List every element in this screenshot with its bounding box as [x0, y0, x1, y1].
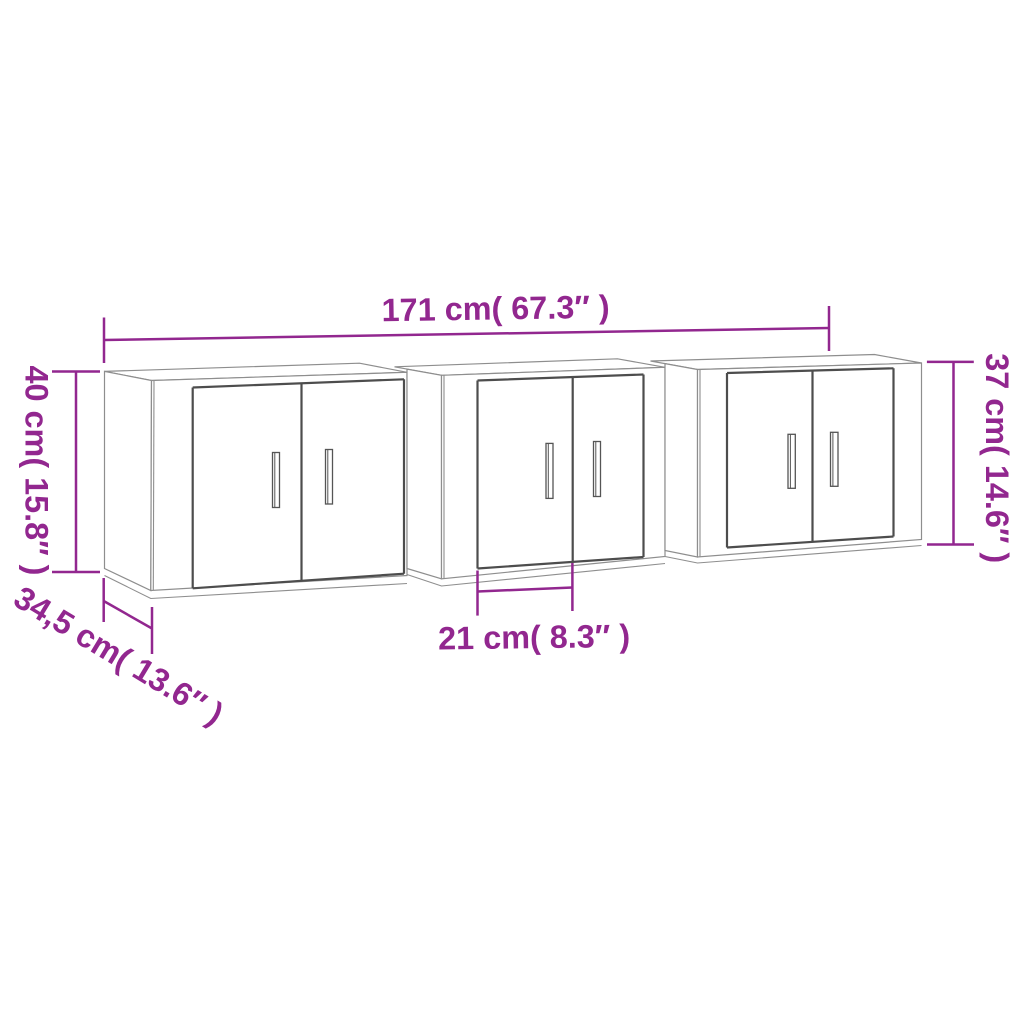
svg-text:21 cm( 8.3″ ): 21 cm( 8.3″ )	[438, 618, 630, 657]
svg-text:37 cm( 14.6″ ): 37 cm( 14.6″ )	[979, 353, 1015, 563]
svg-text:171 cm( 67.3″ ): 171 cm( 67.3″ )	[381, 289, 610, 329]
svg-text:40 cm( 15.8″ ): 40 cm( 15.8″ )	[18, 366, 54, 576]
